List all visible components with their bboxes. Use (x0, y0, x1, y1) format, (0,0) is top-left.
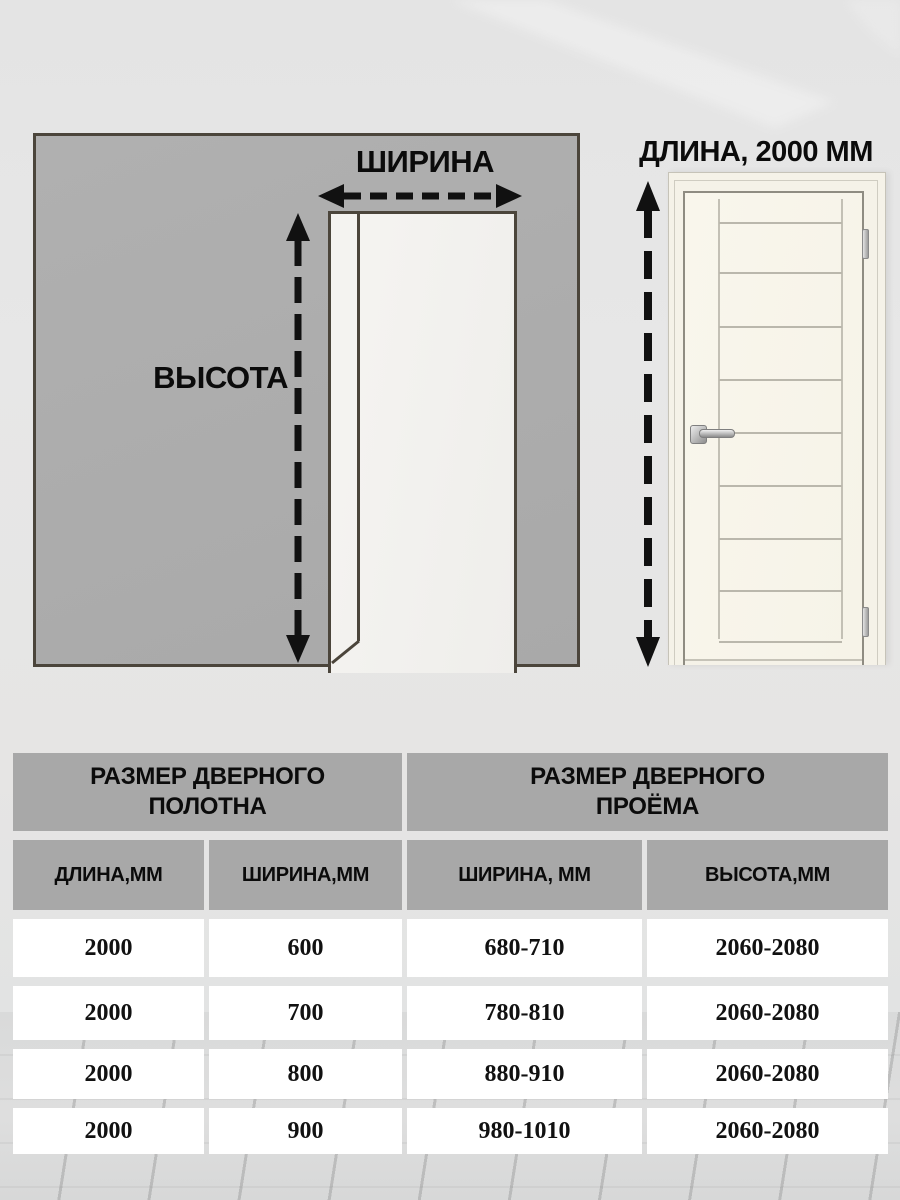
group-header-line: РАЗМЕР ДВЕРНОГО (90, 762, 325, 792)
table-cell: 980-1010 (407, 1108, 642, 1154)
height-label: ВЫСОТА (148, 360, 288, 396)
door-panel-line (719, 222, 842, 224)
column-header-opening-width: ШИРИНА, ММ (407, 840, 642, 910)
group-header-line: ПОЛОТНА (148, 792, 266, 822)
door-panel-line (719, 485, 842, 487)
door-panel-line (719, 326, 842, 328)
table-cell: 2000 (13, 1049, 204, 1099)
width-arrow (318, 184, 522, 208)
door-size-table: РАЗМЕР ДВЕРНОГО ПОЛОТНА РАЗМЕР ДВЕРНОГО … (13, 753, 888, 1154)
door-panel-line (719, 641, 842, 643)
table-cell: 2060-2080 (647, 1108, 888, 1154)
table-cell: 2060-2080 (647, 986, 888, 1040)
door-panel-line (719, 272, 842, 274)
table-cell: 800 (209, 1049, 402, 1099)
door-hinge-bottom (862, 607, 869, 637)
table-cell: 680-710 (407, 919, 642, 977)
door-panel-line (719, 538, 842, 540)
door-illustration (668, 172, 886, 665)
height-arrow (286, 213, 310, 663)
door-handle-lever (699, 429, 735, 438)
door-bottom-edge (685, 659, 862, 661)
group-header-door-opening: РАЗМЕР ДВЕРНОГО ПРОЁМА (407, 753, 888, 831)
table-cell: 2060-2080 (647, 919, 888, 977)
width-label: ШИРИНА (330, 144, 520, 180)
door-length-label: ДЛИНА, 2000 ММ (616, 136, 896, 169)
column-header-leaf-width: ШИРИНА,ММ (209, 840, 402, 910)
door-size-infographic: ШИРИНА ВЫСОТА ДЛИНА, 2000 ММ РАЗМЕР ДВЕР… (0, 0, 900, 1200)
table-cell: 2000 (13, 986, 204, 1040)
column-header-opening-height: ВЫСОТА,ММ (647, 840, 888, 910)
group-header-line: РАЗМЕР ДВЕРНОГО (530, 762, 765, 792)
group-header-line: ПРОЁМА (596, 792, 699, 822)
table-cell: 780-810 (407, 986, 642, 1040)
column-header-length: ДЛИНА,ММ (13, 840, 204, 910)
door-gap-line-right (862, 191, 864, 665)
door-panel-line (719, 590, 842, 592)
table-cell: 880-910 (407, 1049, 642, 1099)
group-header-door-leaf: РАЗМЕР ДВЕРНОГО ПОЛОТНА (13, 753, 402, 831)
door-stile-right (841, 199, 843, 639)
table-cell: 600 (209, 919, 402, 977)
door-panel-line (719, 379, 842, 381)
table-cell: 2000 (13, 919, 204, 977)
table-cell: 2000 (13, 1108, 204, 1154)
door-stile-left (718, 199, 720, 639)
door-hinge-top (862, 229, 869, 259)
jamb-diagonal-line (332, 641, 359, 663)
table-cell: 700 (209, 986, 402, 1040)
door-panel-line (719, 432, 842, 434)
door-length-arrow (636, 181, 660, 667)
table-cell: 2060-2080 (647, 1049, 888, 1099)
table-cell: 900 (209, 1108, 402, 1154)
